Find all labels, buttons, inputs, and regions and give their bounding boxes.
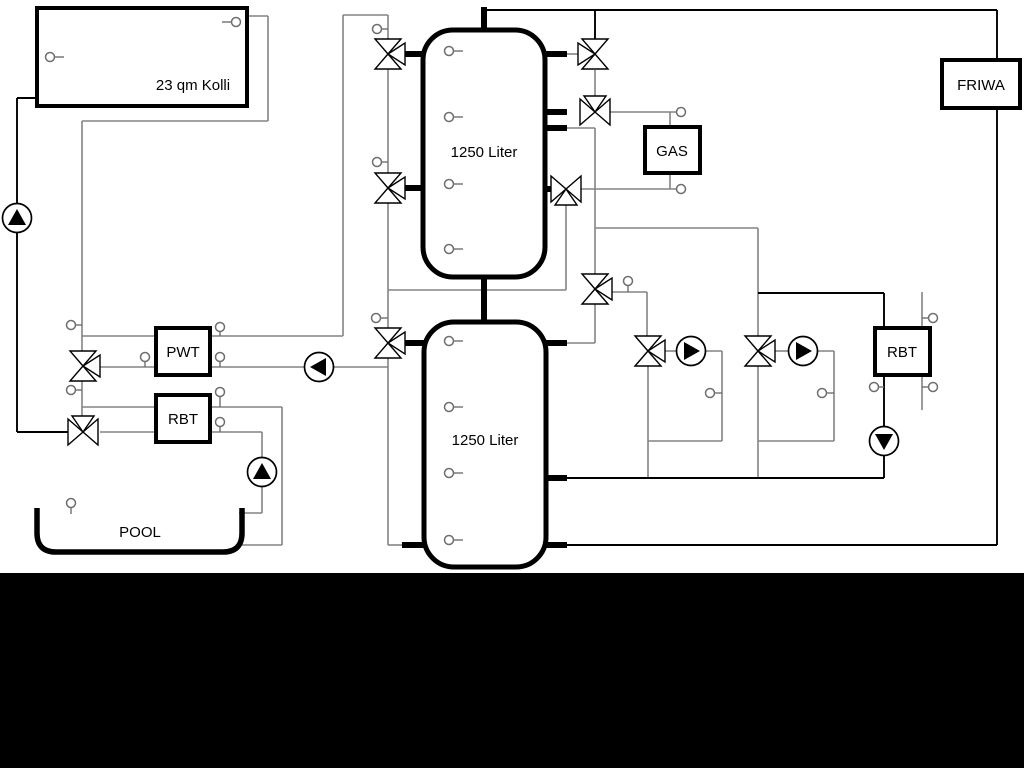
sensor-port-icon [67, 499, 76, 515]
sensor-port-icon [373, 158, 389, 167]
pump-pwt-charge-icon [305, 353, 334, 382]
sensor-bulb [373, 158, 382, 167]
sensor-port-icon [677, 185, 686, 194]
sensor-bulb [46, 53, 55, 62]
sensor-port-icon [216, 388, 225, 408]
pwt-label: PWT [166, 344, 199, 361]
tank-port-bulb [445, 337, 454, 346]
schematic-page: 23 qm Kolli1250 Liter1250 LiterGASFRIWAP… [0, 0, 1024, 768]
sensor-port-icon [67, 321, 83, 330]
three-way-valve-circuit-2 [745, 336, 775, 366]
sensor-bulb [624, 277, 633, 286]
sensor-bulb [870, 383, 879, 392]
sensor-port-icon [677, 108, 686, 117]
sensor-port-icon [216, 353, 225, 368]
tank-port-bulb [445, 469, 454, 478]
pump-pool-icon [248, 458, 277, 487]
friwa-label: FRIWA [957, 77, 1005, 94]
sensor-port-icon [624, 277, 633, 293]
three-way-valve-pwt [70, 351, 100, 381]
sensor-bulb [216, 323, 225, 332]
three-way-valve-circuit-1 [635, 336, 665, 366]
collector-label: 23 qm Kolli [156, 77, 230, 94]
sensor-bulb [677, 185, 686, 194]
three-way-valve-tank2-left [375, 328, 405, 358]
sensor-port-icon [216, 323, 225, 337]
three-way-valve-tank1-mid-left [375, 173, 405, 203]
three-way-valve-tank1-top-left [375, 39, 405, 69]
tank1-label: 1250 Liter [451, 144, 518, 161]
rbt_left-label: RBT [168, 411, 198, 428]
pool-label: POOL [119, 524, 161, 541]
sensor-bulb [232, 18, 241, 27]
sensor-port-icon [818, 389, 835, 398]
pump-solar-icon [3, 204, 32, 233]
hydraulic-schematic-diagram: 23 qm Kolli1250 Liter1250 LiterGASFRIWAP… [0, 0, 1024, 768]
pump-circuit-2-icon [789, 337, 818, 366]
sensor-bulb [706, 389, 715, 398]
sensor-bulb [141, 353, 150, 362]
three-way-valve-pool [68, 416, 98, 445]
footer-black-band [0, 573, 1024, 768]
three-way-valve-gas-return [551, 176, 581, 205]
sensor-port-icon [922, 314, 938, 323]
sensor-port-icon [870, 383, 885, 392]
sensor-bulb [67, 386, 76, 395]
sensor-bulb [67, 499, 76, 508]
tank-port-bulb [445, 403, 454, 412]
pump-circuit-1-icon [677, 337, 706, 366]
sensor-port-icon [706, 389, 723, 398]
tank-port-bulb [445, 47, 454, 56]
sensor-port-icon [922, 383, 938, 392]
sensor-port-icon [67, 386, 83, 395]
sensor-bulb [67, 321, 76, 330]
tank-port-bulb [445, 536, 454, 545]
sensor-bulb [929, 314, 938, 323]
sensor-bulb [929, 383, 938, 392]
rbt_right-label: RBT [887, 344, 917, 361]
pump-rbt-right-icon [870, 427, 899, 456]
sensor-port-icon [216, 418, 225, 433]
sensor-bulb [216, 388, 225, 397]
sensor-bulb [677, 108, 686, 117]
sensor-bulb [216, 418, 225, 427]
sensor-bulb [372, 314, 381, 323]
tank-port-bulb [445, 180, 454, 189]
three-way-valve-tank1-top-right [578, 39, 608, 69]
tank-port-bulb [445, 113, 454, 122]
tank2-label: 1250 Liter [452, 432, 519, 449]
sensor-bulb [373, 25, 382, 34]
sensor-port-icon [373, 25, 389, 34]
gas-label: GAS [656, 143, 688, 160]
three-way-valve-gas-supply [580, 96, 610, 125]
sensor-bulb [216, 353, 225, 362]
sensor-bulb [818, 389, 827, 398]
sensor-port-icon [372, 314, 389, 323]
three-way-valve-distribution [582, 274, 612, 304]
sensor-port-icon [141, 353, 150, 368]
tank-port-bulb [445, 245, 454, 254]
